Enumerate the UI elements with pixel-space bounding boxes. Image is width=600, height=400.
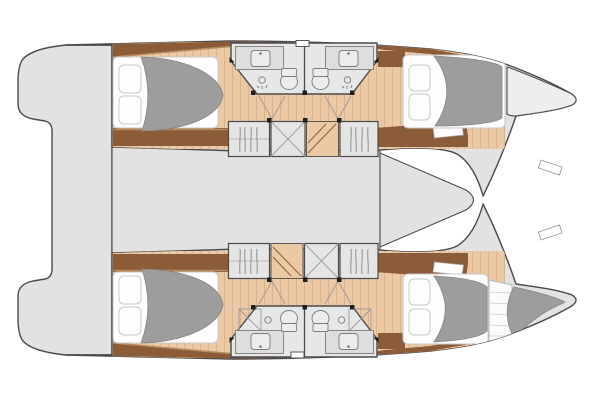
wardrobe	[340, 122, 378, 157]
wardrobe	[340, 244, 378, 279]
port-bathrooms	[230, 41, 379, 96]
wall-post	[303, 118, 308, 123]
port-furniture-row	[229, 118, 379, 157]
stbd-aft-cabin-bed	[113, 269, 223, 343]
stbd-floor-border-aft-inner	[113, 254, 232, 272]
door-post	[303, 305, 308, 310]
pillow	[409, 279, 430, 305]
floor-plan-canvas	[0, 0, 600, 400]
port-aft-cabin-bed	[113, 57, 223, 131]
port-fwd-wood-locker	[378, 51, 405, 67]
foredeck	[380, 153, 474, 247]
stbd-forward-cabin-bed	[403, 274, 488, 344]
port-bow-locker	[507, 67, 576, 116]
pillow	[119, 96, 141, 124]
faucet	[259, 345, 262, 348]
aft-platform	[18, 45, 112, 355]
stbd-bathrooms	[230, 305, 379, 358]
toilet-tank	[282, 69, 297, 77]
door-post	[350, 305, 355, 310]
door-post	[251, 91, 256, 96]
saloon-deck	[112, 147, 380, 253]
toilet-tank	[313, 324, 328, 332]
pillow	[119, 307, 141, 335]
pillow	[119, 276, 141, 304]
door-post	[350, 91, 355, 96]
faucet	[347, 345, 350, 348]
catamaran-floor-plan	[0, 0, 600, 400]
wall-post	[337, 278, 342, 283]
deck-hatch	[291, 352, 304, 358]
stbd-furniture-row	[229, 244, 379, 283]
pillow	[119, 65, 141, 93]
pillow	[409, 309, 430, 335]
port-forward-cabin-bed	[403, 55, 505, 128]
toilet-tank	[282, 324, 297, 332]
pillow	[409, 65, 430, 91]
faucet	[347, 52, 350, 55]
door-post	[303, 91, 308, 96]
bow-step-port	[539, 160, 563, 175]
bow-step-starboard	[539, 225, 563, 240]
wall-post	[267, 118, 272, 123]
wall-post	[267, 278, 272, 283]
wall-post	[303, 278, 308, 283]
stbd-fwd-wood-locker	[378, 333, 405, 349]
pillow	[409, 94, 430, 120]
wall-post	[337, 118, 342, 123]
toilet-tank	[313, 69, 328, 77]
faucet	[259, 52, 262, 55]
door-post	[251, 305, 256, 310]
deck-hatch	[296, 41, 309, 47]
port-floor-border-aft-inner	[113, 128, 232, 146]
